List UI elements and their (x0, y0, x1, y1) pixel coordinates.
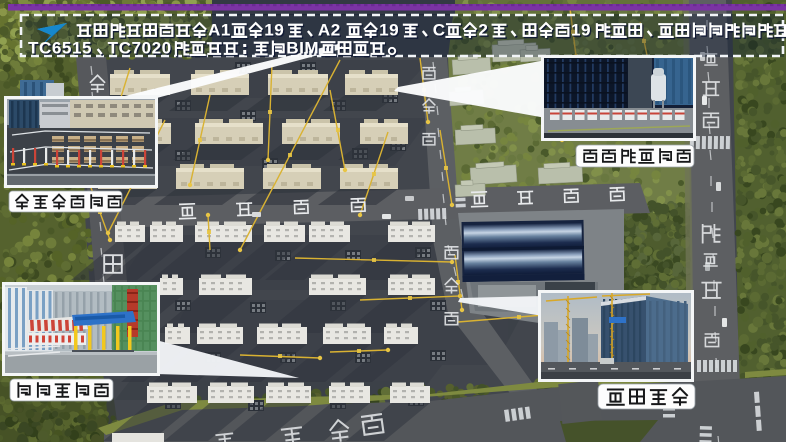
svg-text:C: C (433, 21, 446, 40)
svg-text:A2: A2 (318, 21, 341, 40)
svg-text:2: 2 (478, 21, 488, 40)
svg-text:19: 19 (264, 21, 284, 40)
svg-text:TC7020: TC7020 (108, 39, 172, 58)
svg-text:19: 19 (379, 21, 399, 40)
svg-text:TC6515: TC6515 (28, 39, 92, 58)
svg-text:BIM: BIM (286, 39, 319, 58)
svg-text:19: 19 (571, 21, 591, 40)
svg-text:A1: A1 (208, 21, 231, 40)
